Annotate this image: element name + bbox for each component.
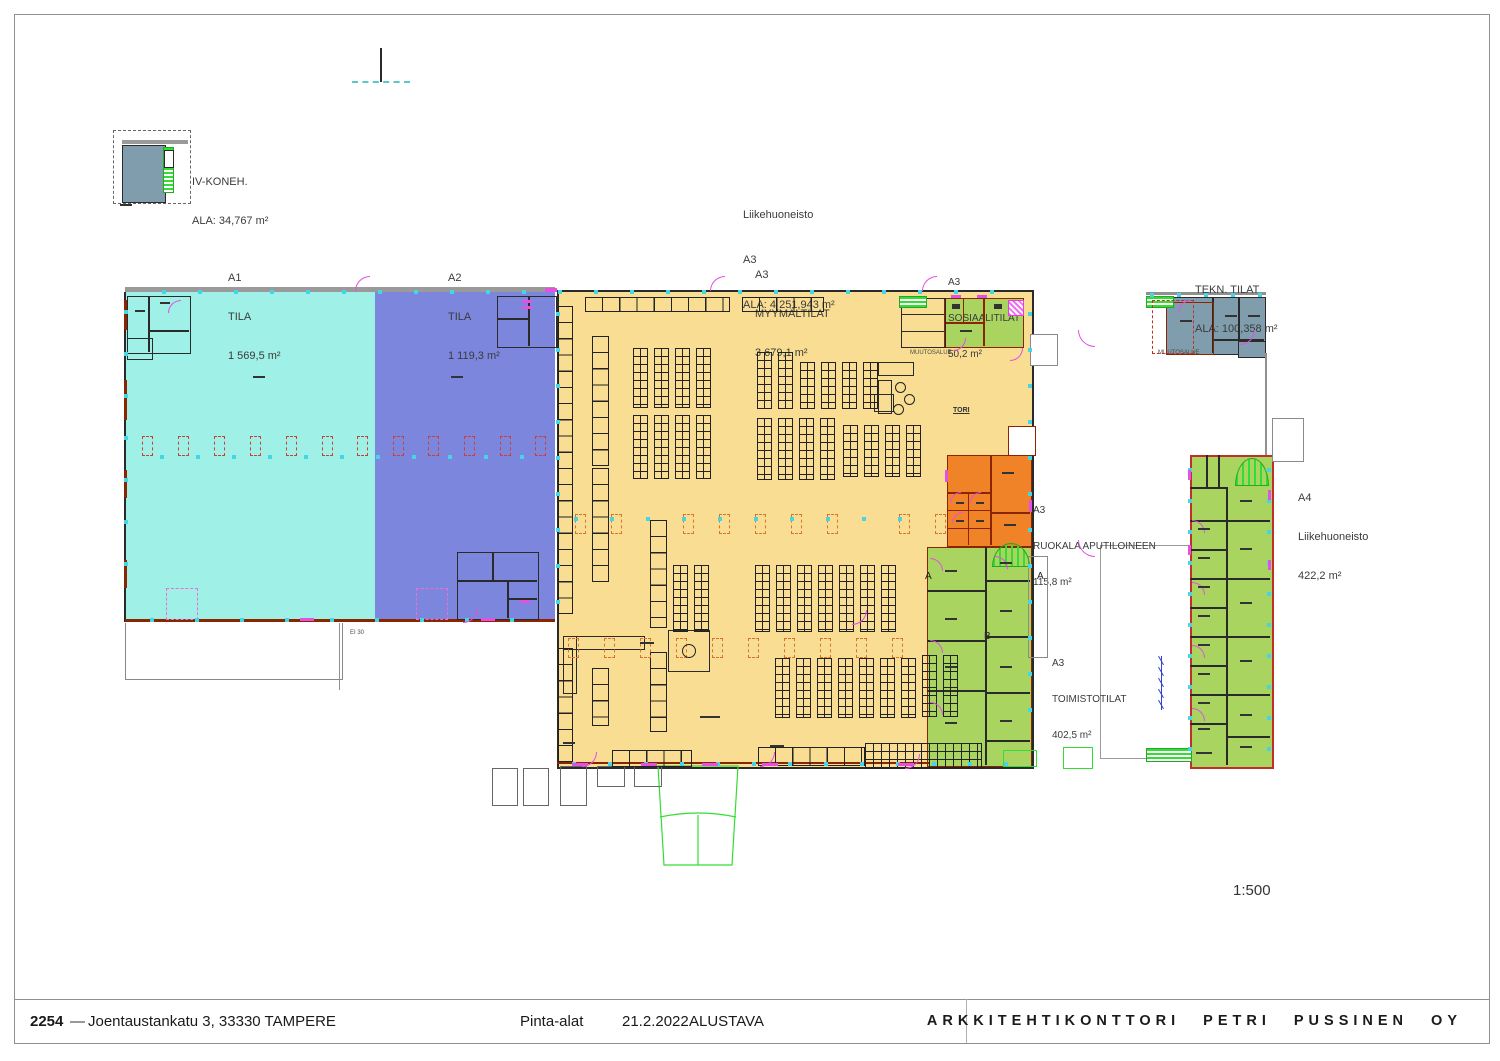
wall-tick [414,290,418,294]
column-marker [640,638,651,658]
wall-tick [630,290,634,294]
drawing-status: ALUSTAVA [689,1013,764,1030]
wall-tick [1188,623,1192,627]
wall-tick [1028,708,1032,712]
shelf-rack [817,658,832,718]
wall-tick [824,762,828,766]
room-label-mark [1196,752,1212,754]
label-line: 115,8 m² [1033,577,1156,589]
wall-tick [790,517,794,521]
area-label-a2: A2 TILA 1 119,3 m² [448,246,500,389]
room-label-mark [1198,528,1210,530]
room-label-mark [1000,666,1012,668]
wall-tick [1267,654,1271,658]
room-label-mark [1240,500,1252,502]
furniture-icon [893,404,904,415]
shelf-rack [838,658,853,718]
dash-separator: — [70,1013,85,1030]
shelf-ladder [558,648,573,762]
drawing-scale: 1:500 [1233,884,1271,897]
wall-tick [774,290,778,294]
room-label-mark [1000,562,1012,564]
room-label-mark [1240,714,1252,716]
wall-tick [608,762,612,766]
room-label-mark [1225,315,1237,317]
wall-tick [1267,623,1271,627]
label-line: 1 569,5 m² [228,350,281,363]
door-marker [641,763,657,766]
wall-tick [378,290,382,294]
wall-line [1190,487,1226,489]
shelf-rack [778,352,793,409]
wall-tick [1028,420,1032,424]
hatch-area [899,296,927,308]
area-label-a4: A4 Liikehuoneisto 422,2 m² [1298,466,1368,609]
room-label-mark [451,376,463,378]
wall-tick [1188,499,1192,503]
room-label-mark [945,666,957,668]
fixture-mark [952,304,960,309]
shelf-rack [881,565,896,632]
cart-area-outline [1003,750,1037,767]
shelf-rack [820,418,835,480]
wall-tick [162,290,166,294]
wall-line [1190,549,1226,551]
column-marker [178,436,189,456]
shelf-rack [885,425,900,477]
shelf-rack [842,362,857,409]
firewall-line [983,298,985,346]
iv-koneh-label: IV-KONEH. ALA: 34,767 m² [192,150,268,254]
door-marker [1188,470,1191,480]
wall-tick [556,456,560,460]
shelf-rack [755,565,770,632]
wall-tick [340,455,344,459]
wall-tick [1004,762,1008,766]
wall-tick [754,517,758,521]
wall-tick [124,394,128,398]
label-line: TILA [448,311,500,324]
label-line: IV-KONEH. [192,176,268,189]
room-label-mark [1198,644,1210,646]
door-marker [545,288,557,292]
wall-tick [556,420,560,424]
section-mark-a-left: A [925,570,932,583]
door-marker [945,470,948,482]
wall-tick [240,618,244,622]
column-marker [322,436,333,456]
project-address: Joentaustankatu 3, 33330 TAMPERE [88,1013,336,1030]
wall-tick [556,528,560,532]
architect-firm: ARKKITEHTIKONTTORI PETRI PUSSINEN OY [927,1013,1462,1029]
shelf-ladder [592,468,609,582]
shelf-rack [778,418,793,480]
wall-tick [954,290,958,294]
wall-tick [232,455,236,459]
wall-line [1212,339,1264,341]
wall-line [1190,578,1226,580]
wall-tick [1204,293,1208,297]
drawing-date: 21.2.2022 [622,1013,689,1030]
wall-line [985,580,1030,582]
titleblock-divider [14,999,1489,1000]
structure-line [339,623,340,690]
room-label-mark [160,302,170,304]
wall-line [1226,694,1270,696]
wall-tick [860,762,864,766]
title-block: 2254 — Joentaustankatu 3, 33330 TAMPERE … [0,1006,1500,1046]
label-line: ALA: 34,767 m² [192,215,268,228]
wall-tick [1258,293,1262,297]
column-marker [142,436,153,456]
room-label-mark [1000,720,1012,722]
shelf-rack [799,418,814,480]
shelf-rack [864,425,879,477]
wall-tick [1028,564,1032,568]
door-marker [522,306,532,309]
column-marker [250,436,261,456]
room-label-mark [956,520,964,522]
room-label-mark [1198,586,1210,588]
loading-bay-outline [634,766,662,787]
wall-tick [306,290,310,294]
wall-tick [450,290,454,294]
room-label-mark [945,618,957,620]
shelf-rack [843,425,858,477]
room-label-mark [1198,728,1210,730]
wall-tick [1028,312,1032,316]
wall-tick [1188,747,1192,751]
wall-tick [375,618,379,622]
wall-tick [680,762,684,766]
column-marker [712,638,723,658]
label-line: A3 [948,277,1020,289]
wall-line [1226,520,1270,522]
structure-line [1265,353,1267,455]
wall-tick [195,618,199,622]
wall-tick [810,290,814,294]
wall-line [1218,455,1220,487]
room-label-mark [945,722,957,724]
shelf-rack [818,565,833,632]
label-line: A3 [1033,505,1156,517]
wall-tick [342,290,346,294]
wall-tick [285,618,289,622]
firewall-line [124,380,127,420]
shelf-rack [675,348,690,408]
reserved-area-outline [166,588,198,620]
column-marker [428,436,439,456]
shelf-rack [776,565,791,632]
wall-tick [304,455,308,459]
shelf-rack [943,655,958,717]
wall-tick [702,290,706,294]
wall-tick [1231,293,1235,297]
cart-area-outline [1063,747,1093,769]
room-label-mark [563,742,575,744]
shelf-row [742,297,824,312]
label-line: Liikehuoneisto [1298,531,1368,544]
door-marker [1029,500,1032,512]
wall-tick [1267,747,1271,751]
room-label-mark [976,502,984,504]
room-label-mark [1004,524,1016,526]
column-marker [500,436,511,456]
wall-tick [420,618,424,622]
column-marker [568,638,579,658]
label-line: Liikehuoneisto [743,208,835,223]
shelf-rack [757,418,772,480]
area-a4-liikehuoneisto [1190,455,1274,769]
wall-tick [412,455,416,459]
wall-tick [862,517,866,521]
wall-tick [846,290,850,294]
hatched-room-marker [1008,300,1024,316]
column-marker [856,638,867,658]
wall-tick [448,455,452,459]
survey-line [352,81,410,83]
column-marker [820,638,831,658]
wall-tick [556,564,560,568]
shelf-rack [633,348,648,408]
wall-tick [556,348,560,352]
column-marker [604,638,615,658]
wall-tick [330,618,334,622]
room-label-mark [1002,472,1014,474]
shelf-ladder [592,336,609,466]
shelf-rack [821,362,836,409]
drawing-type: Pinta-alat [520,1013,583,1030]
wall-tick [556,312,560,316]
shelf-rack [901,658,916,718]
wall-tick [882,290,886,294]
wall-tick [574,517,578,521]
wall-tick [1028,456,1032,460]
wall-tick [520,455,524,459]
column-marker [535,436,546,456]
room-label-mark [1248,315,1260,317]
wall-tick [1028,600,1032,604]
shelf-rack [696,415,711,479]
wall-tick [738,290,742,294]
door-marker [481,618,495,621]
shaft-outline [1272,418,1304,462]
wall-tick [1267,592,1271,596]
survey-marker-pole [380,48,382,82]
label-line: A4 [1298,492,1368,505]
wall-tick [484,455,488,459]
wall-tick [268,455,272,459]
wall-tick [124,310,128,314]
wall-tick [124,352,128,356]
wall-tick [1267,530,1271,534]
shelf-ladder [650,652,667,732]
fixture-mark [994,304,1002,309]
room-label-mark [1240,548,1252,550]
iv-koneh-room [122,145,166,203]
shelf-rack [859,658,874,718]
door-marker [1268,490,1271,500]
reserved-area-outline [416,588,448,620]
shelf-rack [906,425,921,477]
floor-plan-sheet: IV-KONEH. ALA: 34,767 m² A1 TILA 1 569,5… [0,0,1500,1061]
door-marker [1188,545,1191,555]
column-marker [214,436,225,456]
room-outline [497,296,557,348]
wall-tick [1177,293,1181,297]
room-label-mark [1240,746,1252,748]
wall-line [1226,736,1270,738]
wall-tick [558,290,562,294]
shelf-rack [694,565,709,632]
label-line: A3 [755,269,830,282]
firewall-line [990,512,1030,514]
door-marker [702,763,718,766]
wall-tick [932,762,936,766]
room-label-mark [1180,320,1192,322]
door-marker [1268,560,1271,570]
wall-line [1206,455,1208,487]
column-marker [393,436,404,456]
wall-line [985,692,1030,694]
wall-tick [718,517,722,521]
room-label-mark [770,745,784,747]
label-line: A2 [448,272,500,285]
label-line: A3 [1052,658,1126,670]
firewall-line [124,470,127,498]
wall-line [985,740,1030,742]
iv-koneh-wall [122,140,188,144]
shelf-rack [800,362,815,409]
wall-tick [124,562,128,566]
checkout-grid [865,743,982,769]
wall-tick [752,762,756,766]
wall-line [1190,723,1226,725]
label-line: 1 119,3 m² [448,350,500,363]
firewall-line [963,298,964,322]
project-number: 2254 [30,1013,63,1030]
wall-tick [594,290,598,294]
room-label-mark [976,520,984,522]
wall-tick [160,455,164,459]
loading-bay-outline [560,766,587,806]
column-marker [892,638,903,658]
wall-tick [196,455,200,459]
loading-bay-outline [523,768,549,806]
column-marker [748,638,759,658]
wall-tick [788,762,792,766]
shelf-rack [860,565,875,632]
shaft-outline [1030,334,1058,366]
room-label-mark [1198,702,1210,704]
shelf-rack [654,348,669,408]
wall-tick [826,517,830,521]
hatch-area [1146,748,1192,762]
room-label-mark [1240,602,1252,604]
column-marker [464,436,475,456]
column-marker [784,638,795,658]
column-marker [935,514,946,534]
room-label-mark [1198,557,1210,559]
fire-rating-label: EI 30 [350,630,364,637]
room-label-mark [640,642,654,644]
shelf-rack [775,658,790,718]
dock-outline [125,623,343,680]
room-label-mark [1240,660,1252,662]
wall-tick [124,478,128,482]
wall-tick [1267,685,1271,689]
wall-tick [1028,492,1032,496]
section-marker [1028,556,1048,658]
door-marker [977,295,987,298]
wall-tick [1028,636,1032,640]
wall-tick [556,384,560,388]
column-marker [286,436,297,456]
wall-tick [198,290,202,294]
wall-line [1190,636,1226,638]
wall-tick [1028,384,1032,388]
wall-line [985,636,1030,638]
shelf-rack [654,415,669,479]
firewall-line [990,455,992,545]
wall-tick [682,517,686,521]
wall-line [1226,636,1270,638]
wall-tick [1150,293,1154,297]
wall-tick [376,455,380,459]
label-line: 422,2 m² [1298,570,1368,583]
shelf-rack [633,415,648,479]
wall-tick [556,492,560,496]
label-line: TILA [228,311,281,324]
room-label-mark [700,716,720,718]
door-marker [951,295,961,298]
firewall-line [968,492,969,545]
wall-tick [522,290,526,294]
tori-label: TORI [953,404,970,417]
wall-tick [270,290,274,294]
shelf-ladder [650,520,667,628]
furniture-icon [904,394,915,405]
wall-tick [990,290,994,294]
wall-line [1190,665,1226,667]
wall-tick [124,520,128,524]
room-label-mark [1000,610,1012,612]
column-marker [357,436,368,456]
wall-line [1190,607,1226,609]
shelf-rack [696,348,711,408]
wall-tick [1267,716,1271,720]
furniture-icon [682,644,696,658]
area-label-a1: A1 TILA 1 569,5 m² [228,246,281,389]
firewall-line [944,322,983,324]
room-label-mark [945,570,957,572]
door-marker [520,600,530,603]
wall-line [1190,694,1226,696]
wall-tick [1028,348,1032,352]
shelf-row [585,297,730,312]
wall-tick [646,517,650,521]
wall-tick [234,290,238,294]
wall-tick [124,436,128,440]
label-line: TOIMISTOTILAT [1052,694,1126,706]
room-outline [127,338,153,360]
wall-tick [486,290,490,294]
shelf-rack [757,352,772,409]
shelf-rack [797,565,812,632]
shelf-rack [796,658,811,718]
room-label-mark [135,310,145,312]
shelf-rack [863,362,878,409]
